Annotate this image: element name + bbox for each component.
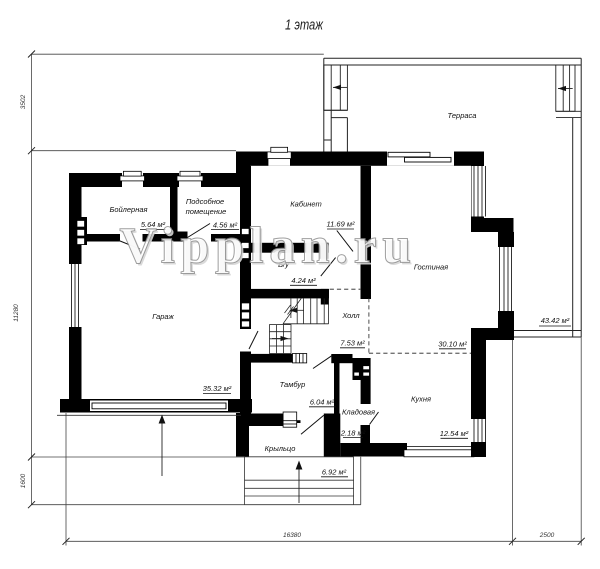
svg-text:Терраса: Терраса <box>448 111 477 120</box>
svg-text:43.42 м²: 43.42 м² <box>541 316 570 325</box>
svg-text:Бойлерная: Бойлерная <box>109 205 147 214</box>
svg-text:1 этаж: 1 этаж <box>285 18 324 34</box>
svg-text:2500: 2500 <box>539 532 555 539</box>
svg-text:Кабинет: Кабинет <box>290 200 321 209</box>
svg-text:Гостиная: Гостиная <box>414 263 448 272</box>
svg-text:Тамбур: Тамбур <box>280 380 306 389</box>
svg-text:4.24 м²: 4.24 м² <box>291 276 316 285</box>
svg-text:Подсобное: Подсобное <box>186 197 224 206</box>
svg-text:1600: 1600 <box>20 473 27 488</box>
svg-text:Кухня: Кухня <box>411 395 431 404</box>
svg-text:30.10 м²: 30.10 м² <box>438 340 467 349</box>
svg-text:6.04 м²: 6.04 м² <box>310 398 335 407</box>
svg-text:16380: 16380 <box>283 532 301 539</box>
svg-text:7.53 м²: 7.53 м² <box>340 339 365 348</box>
svg-text:3502: 3502 <box>20 94 27 109</box>
svg-text:Холл: Холл <box>341 311 360 320</box>
svg-text:6.92 м²: 6.92 м² <box>322 468 347 477</box>
svg-text:12.54 м²: 12.54 м² <box>440 429 469 438</box>
svg-text:Крыльцо: Крыльцо <box>265 444 296 453</box>
svg-text:11280: 11280 <box>13 304 20 322</box>
svg-text:Vipplan.ru: Vipplan.ru <box>119 218 416 275</box>
svg-text:помещение: помещение <box>186 207 227 216</box>
svg-text:Гараж: Гараж <box>152 312 174 321</box>
svg-text:2.18 м²: 2.18 м² <box>340 429 366 438</box>
svg-text:Кладовая: Кладовая <box>342 408 375 417</box>
svg-text:35.32 м²: 35.32 м² <box>203 384 232 393</box>
